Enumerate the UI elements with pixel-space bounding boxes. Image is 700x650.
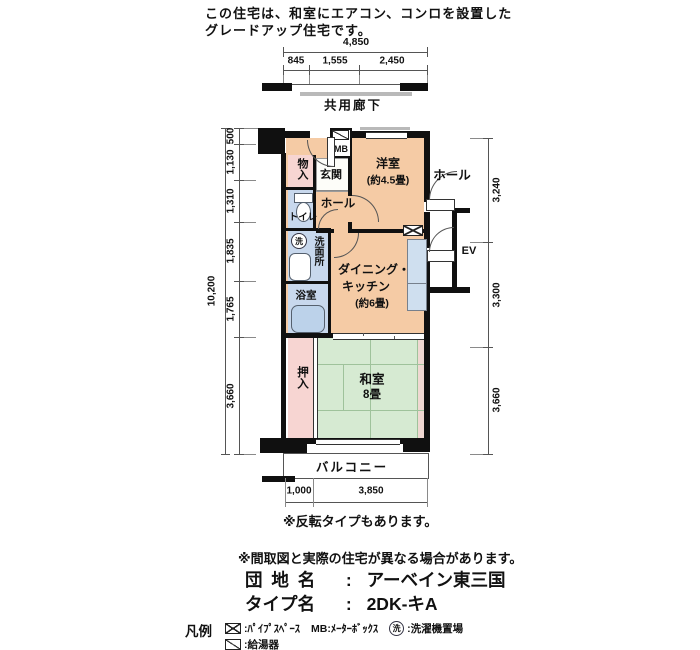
- dim-line: [283, 70, 427, 71]
- dim-ext: [244, 144, 256, 145]
- sliding-door-tick: [363, 333, 364, 336]
- genkan-label: 玄関: [320, 166, 342, 182]
- dim-right-3300: 3,300: [492, 282, 503, 307]
- dim-left-1130: 1,130: [226, 149, 237, 174]
- note-reverse-type: ※反転タイプもあります。: [283, 511, 437, 530]
- wall-bottom-right-block: [403, 438, 430, 452]
- western-room-size: (約4.5畳): [367, 173, 410, 188]
- window-sill: [360, 127, 410, 130]
- dim-ext: [313, 478, 314, 507]
- outer-hall-door-leaf: [426, 199, 455, 211]
- dim-ext: [244, 222, 256, 223]
- legend-pipe-label: :ﾊﾟｲﾌﾟｽﾍﾟｰｽ: [244, 621, 300, 636]
- dim-left-total: 10,200: [207, 276, 218, 307]
- tatami-line: [316, 410, 424, 411]
- corridor-wall: [262, 83, 292, 91]
- dim-tick: [234, 281, 244, 282]
- dim-top-845: 845: [288, 56, 305, 67]
- wall-bath-right: [328, 284, 331, 333]
- wall-washroom-right: [328, 231, 331, 284]
- corridor-label: 共用廊下: [324, 95, 382, 114]
- tatami-line: [343, 364, 344, 410]
- genkan-step-line: [316, 190, 348, 191]
- bathtub-icon: [291, 305, 325, 333]
- dim-tick: [283, 65, 284, 75]
- wall-bottom-left-block: [260, 438, 307, 453]
- outer-hall-label: ホール: [433, 165, 471, 184]
- type-name-row: タイプ名 : 2DK-キA: [245, 591, 438, 616]
- dim-ext: [244, 337, 256, 338]
- meter-box-label: MB: [334, 144, 348, 154]
- wall-top-left-seg: [285, 131, 310, 138]
- dim-tick: [221, 454, 230, 455]
- vanity-sink-icon: [289, 253, 311, 281]
- pipe-space-legend-icon: [225, 623, 241, 634]
- ev-label: EV: [462, 245, 477, 257]
- dim-ext: [244, 454, 256, 455]
- dim-left-500: 500: [226, 128, 237, 145]
- kitchen-sink-icon: [407, 283, 427, 311]
- dim-tick: [483, 138, 493, 139]
- wall-top-left-block: [258, 128, 285, 154]
- dim-ext: [470, 138, 483, 139]
- dim-line-left-inner: [239, 128, 240, 455]
- washitsu-size: 8畳: [363, 386, 381, 402]
- dim-tick: [309, 65, 310, 75]
- estate-name-label: 団 地 名: [245, 567, 331, 592]
- washitsu-label: 和室: [359, 369, 384, 388]
- dim-left-1310: 1,310: [226, 188, 237, 213]
- dim-ext: [470, 454, 483, 455]
- wall-dk-washitsu: [286, 333, 333, 338]
- dim-ext: [244, 128, 258, 129]
- dim-line-bottom: [285, 502, 427, 503]
- sliding-door-dk-washitsu: [333, 333, 424, 340]
- dim-tick: [427, 47, 428, 57]
- washitsu-window: [316, 439, 400, 445]
- legend-washer-label: :洗濯機置場: [407, 621, 463, 636]
- washer-place-icon: 洗: [291, 233, 307, 249]
- oshiire-label: 押入: [294, 366, 310, 406]
- washroom-label: 洗面所: [310, 236, 325, 282]
- western-room-label: 洋室: [376, 155, 400, 172]
- legend-title: 凡例: [185, 620, 212, 640]
- dim-ext: [244, 180, 256, 181]
- estate-name-row: 団 地 名 : アーベイン東三国: [245, 567, 506, 592]
- dim-tick: [234, 337, 244, 338]
- dim-line-right: [488, 138, 489, 455]
- corridor-edge-line: [292, 84, 400, 85]
- type-name-label: タイプ名: [245, 591, 331, 616]
- dim-bottom-3850: 3,850: [358, 486, 383, 497]
- dim-tick: [483, 242, 493, 243]
- legend-mb-label: MB:ﾒｰﾀｰﾎﾞｯｸｽ: [311, 621, 378, 636]
- monoire-label: 物入: [294, 158, 310, 192]
- dk-size: (約6畳): [355, 296, 389, 311]
- dim-tick: [359, 65, 360, 75]
- estate-name-colon: :: [346, 570, 352, 590]
- balcony-wall-stub: [262, 476, 295, 482]
- dim-right-3660: 3,660: [492, 387, 503, 412]
- tatami-line: [316, 364, 424, 365]
- dim-tick: [283, 47, 284, 57]
- note-disclaimer: ※間取図と実際の住宅が異なる場合があります。: [238, 548, 522, 567]
- dim-top-1555: 1,555: [322, 56, 347, 67]
- legend-row2: :給湯器: [225, 637, 279, 650]
- ev-hall-door-arc: [429, 227, 454, 252]
- dim-tick: [483, 454, 493, 455]
- floorplan-page: この住宅は、和室にエアコン、コンロを設置した グレードアップ住宅です。 4,85…: [0, 0, 700, 650]
- dim-left-3660: 3,660: [226, 383, 237, 408]
- ev-shaft-bottom-stub: [430, 287, 470, 293]
- balcony-label: バルコニー: [316, 457, 388, 476]
- legend-heater-label: :給湯器: [244, 637, 279, 650]
- dim-ext: [427, 478, 428, 507]
- dim-right-3240: 3,240: [492, 177, 503, 202]
- type-name-colon: :: [346, 594, 352, 614]
- washer-legend-icon: 洗: [389, 621, 404, 636]
- dim-tick: [234, 222, 244, 223]
- dim-ext: [470, 242, 483, 243]
- dim-ext: [244, 281, 256, 282]
- dim-top-total: 4,850: [343, 36, 369, 48]
- dim-ext: [309, 75, 310, 84]
- pipe-space-icon: [403, 225, 423, 236]
- hall-label: ホール: [321, 195, 356, 211]
- western-room-window: [366, 132, 407, 139]
- corridor-wall: [400, 83, 428, 91]
- legend-row1: :ﾊﾟｲﾌﾟｽﾍﾟｰｽ MB:ﾒｰﾀｰﾎﾞｯｸｽ 洗 :洗濯機置場: [225, 621, 463, 636]
- dim-tick: [483, 347, 493, 348]
- dim-left-1835: 1,835: [226, 238, 237, 263]
- bath-label: 浴室: [296, 288, 317, 303]
- wall-left: [281, 153, 286, 443]
- dim-bottom-1000: 1,000: [286, 486, 311, 497]
- dim-tick: [234, 180, 244, 181]
- sliding-door-tick: [394, 336, 395, 339]
- type-name-value: 2DK-キA: [367, 594, 438, 614]
- toilet-label: トイレ: [289, 209, 318, 223]
- dim-top-2450: 2,450: [379, 56, 404, 67]
- water-heater-legend-icon: [225, 639, 241, 650]
- dim-tick: [234, 454, 244, 455]
- sliding-door-oshiire: [313, 338, 318, 438]
- dim-ext: [359, 75, 360, 84]
- dim-left-1765: 1,765: [226, 296, 237, 321]
- dim-line: [283, 52, 427, 53]
- estate-name-value: アーベイン東三国: [367, 570, 506, 590]
- dk-label-line2: キッチン: [342, 278, 390, 295]
- dim-ext: [470, 347, 483, 348]
- dim-tick: [427, 65, 428, 75]
- dk-label-line1: ダイニング・: [338, 261, 410, 278]
